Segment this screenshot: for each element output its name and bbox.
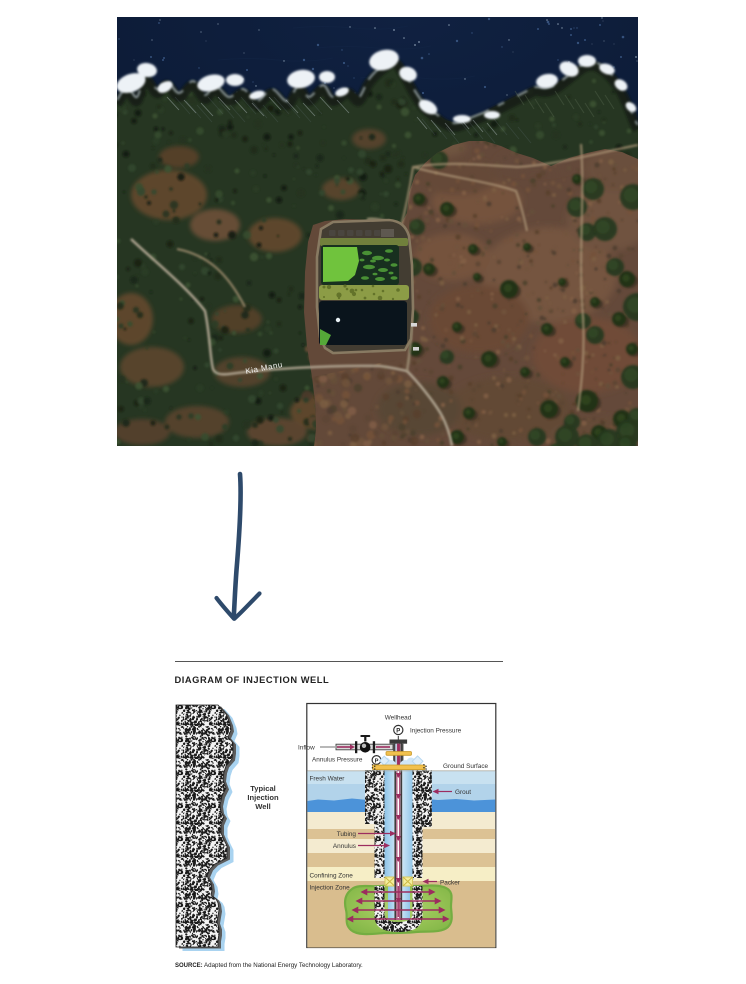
svg-text:Injection Zone: Injection Zone (310, 885, 351, 892)
svg-text:SOURCE: Adapted from the Natio: SOURCE: Adapted from the National Energy… (175, 962, 363, 969)
svg-text:P: P (375, 758, 379, 764)
svg-text:Inflow: Inflow (298, 745, 315, 752)
svg-text:Wellhead: Wellhead (385, 715, 412, 722)
svg-text:Fresh Water: Fresh Water (310, 776, 346, 783)
svg-text:DIAGRAM OF INJECTION WELL: DIAGRAM OF INJECTION WELL (175, 675, 330, 685)
svg-text:Annulus Pressure: Annulus Pressure (312, 757, 363, 764)
svg-text:Confining Zone: Confining Zone (310, 873, 354, 880)
svg-text:Injection Pressure: Injection Pressure (410, 728, 462, 735)
svg-text:Typical: Typical (250, 784, 276, 793)
svg-text:P: P (396, 728, 400, 734)
svg-text:Tubing: Tubing (337, 831, 357, 838)
svg-text:Ground Surface: Ground Surface (443, 763, 489, 770)
svg-text:Injection: Injection (247, 793, 279, 802)
svg-text:Grout: Grout (455, 789, 471, 796)
svg-text:Annulus: Annulus (333, 843, 356, 850)
svg-text:Well: Well (255, 802, 270, 811)
svg-text:Packer: Packer (440, 880, 461, 887)
